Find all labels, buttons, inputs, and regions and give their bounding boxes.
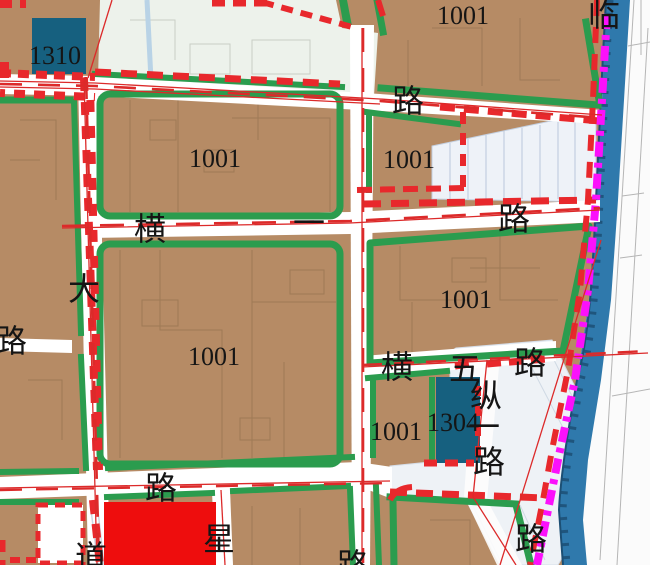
road-label-zong1-lu: 路 [473, 444, 505, 480]
parcel-label-1001-northwest: 1001 [189, 144, 241, 173]
road-label-lu-north: 路 [392, 83, 424, 119]
road-label-lin: 临 [588, 0, 620, 33]
parcel-label-1001-s-small: 1001 [370, 417, 422, 446]
road-label-dao: 道 [75, 539, 107, 565]
parcel-label-1001-east: 1001 [440, 285, 492, 314]
road-label-lu-southeast: 路 [515, 521, 547, 557]
road-label-xing: 星 [203, 521, 235, 557]
road-label-heng1-yi: 一 [293, 205, 325, 241]
road-label-lu-bottom: 路 [337, 547, 369, 565]
road-label-da: 大 [68, 271, 100, 307]
zoning-map-svg: 1310 1001 临 路 1001 1001 横 一 路 大 路 1001 1… [0, 0, 650, 565]
parcel-label-1310: 1310 [29, 41, 81, 70]
road-label-lu-west: 路 [0, 323, 27, 359]
road-label-heng5-heng: 横 [381, 349, 413, 385]
road-label-zong1-yi: 一 [468, 409, 500, 445]
zoning-map-canvas[interactable]: 1310 1001 临 路 1001 1001 横 一 路 大 路 1001 1… [0, 0, 650, 565]
road-label-heng1-heng: 横 [134, 211, 166, 247]
road-label-heng1-lu: 路 [498, 201, 530, 237]
road-label-lu-southwest: 路 [145, 470, 177, 506]
parcel-red-commercial [104, 502, 216, 565]
parcel-label-1001-north: 1001 [437, 1, 489, 30]
parcel-label-1001-center: 1001 [188, 342, 240, 371]
parcel-label-1001-ne-small: 1001 [383, 145, 435, 174]
road-label-heng5-lu: 路 [514, 345, 546, 381]
